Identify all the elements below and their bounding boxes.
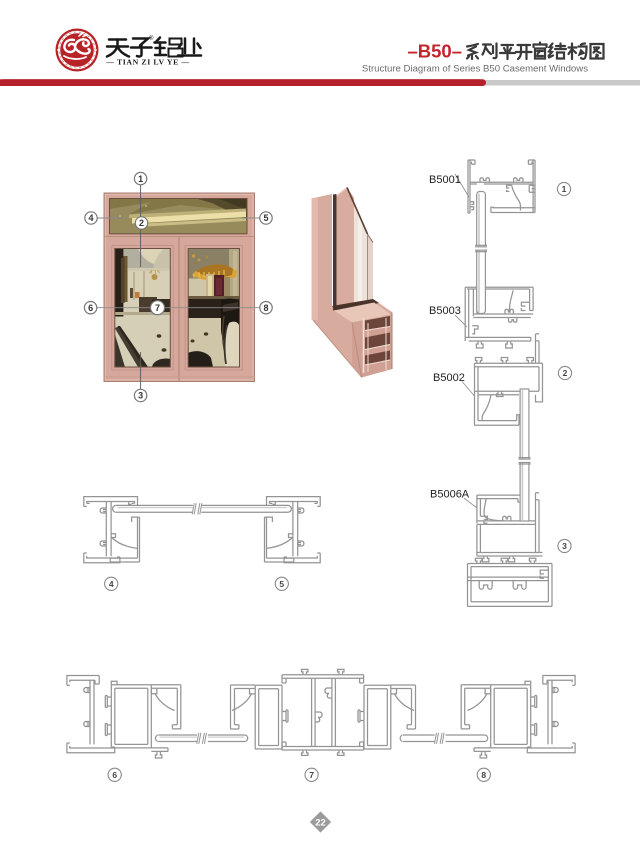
svg-text:4: 4 [109, 579, 114, 589]
svg-text:B5001: B5001 [429, 174, 461, 186]
svg-text:7: 7 [309, 770, 314, 780]
svg-text:B5002: B5002 [433, 372, 465, 384]
svg-text:1: 1 [562, 184, 567, 194]
svg-text:22: 22 [315, 818, 326, 829]
svg-text:B5006A: B5006A [430, 489, 470, 501]
svg-text:8: 8 [263, 303, 268, 313]
svg-text:5: 5 [279, 579, 284, 589]
svg-text:6: 6 [88, 303, 93, 313]
svg-text:7: 7 [155, 303, 160, 313]
svg-text:3: 3 [562, 541, 567, 551]
svg-text:8: 8 [481, 770, 486, 780]
svg-text:4: 4 [88, 213, 93, 223]
svg-text:2: 2 [139, 218, 144, 228]
svg-text:Structure Diagram of Series B5: Structure Diagram of Series B50 Casement… [362, 64, 588, 75]
svg-text:1: 1 [138, 174, 143, 184]
svg-text:3: 3 [138, 391, 143, 401]
svg-text:— TIAN ZI LV YE —: — TIAN ZI LV YE — [105, 58, 190, 67]
svg-text:B5003: B5003 [429, 305, 461, 317]
svg-text:–B50–: –B50– [407, 41, 462, 62]
svg-text:®: ® [149, 35, 154, 42]
svg-text:5: 5 [263, 213, 268, 223]
svg-text:6: 6 [112, 770, 117, 780]
svg-text:2: 2 [563, 368, 568, 378]
